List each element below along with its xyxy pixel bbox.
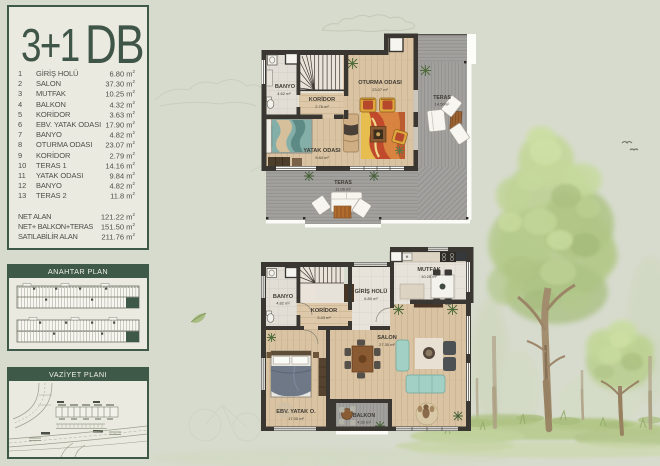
svg-text:GİRİŞ HOLÜ: GİRİŞ HOLÜ <box>355 288 388 295</box>
svg-text:BALKON: BALKON <box>353 413 375 419</box>
svg-text:3.43 m²: 3.43 m² <box>317 315 331 320</box>
svg-text:MUTFAK: MUTFAK <box>417 267 440 273</box>
svg-text:BANYO: BANYO <box>275 84 296 90</box>
svg-text:TERAS: TERAS <box>433 95 451 101</box>
svg-text:10.25 m²: 10.25 m² <box>421 274 437 279</box>
svg-text:TERAS: TERAS <box>334 180 352 186</box>
svg-text:BANYO: BANYO <box>273 294 294 300</box>
svg-text:6.80 m²: 6.80 m² <box>364 296 378 301</box>
svg-text:17.00 m²: 17.00 m² <box>288 416 304 421</box>
svg-text:9.84 m²: 9.84 m² <box>315 155 329 160</box>
svg-text:YATAK ODASI: YATAK ODASI <box>303 148 341 154</box>
svg-text:2.76 m²: 2.76 m² <box>315 104 329 109</box>
svg-text:4.32 m²: 4.32 m² <box>357 420 371 425</box>
svg-text:11.00 m²: 11.00 m² <box>335 187 351 192</box>
svg-text:KORİDOR: KORİDOR <box>311 307 337 314</box>
svg-text:14.50m²: 14.50m² <box>435 102 450 107</box>
svg-text:4.82 m²: 4.82 m² <box>276 301 290 306</box>
svg-text:4.62 m²: 4.62 m² <box>277 91 291 96</box>
svg-text:23.07 m²: 23.07 m² <box>372 87 388 92</box>
svg-text:KORİDOR: KORİDOR <box>309 96 335 103</box>
svg-text:EBV. YATAK O.: EBV. YATAK O. <box>276 409 316 415</box>
svg-text:OTURMA ODASI: OTURMA ODASI <box>358 80 402 86</box>
svg-text:27.30 m²: 27.30 m² <box>379 342 395 347</box>
svg-text:SALON: SALON <box>377 335 397 341</box>
